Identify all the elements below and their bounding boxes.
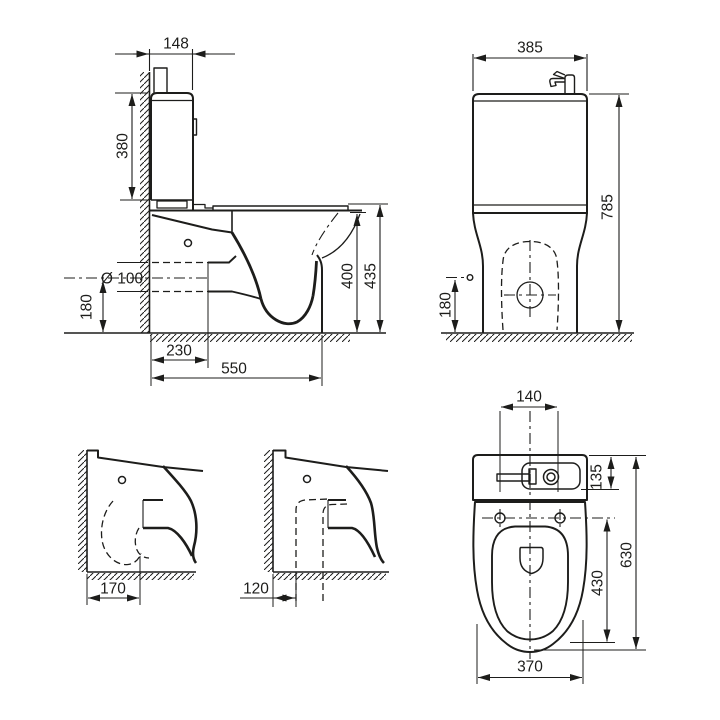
cistern-outline <box>151 93 193 210</box>
top-view: 140 135 630 430 370 <box>473 389 646 685</box>
bowl-top-profile <box>87 451 203 472</box>
bowl-side-right <box>577 213 587 333</box>
dim-label-cistern-depth: 148 <box>163 36 189 53</box>
side-fixing-hole <box>304 476 311 483</box>
tap-lever <box>497 474 530 481</box>
bowl-front-arc <box>322 214 360 258</box>
cistern-front-outline <box>473 94 587 213</box>
dim-label-total-depth: 550 <box>221 361 247 378</box>
dim-label-total-length: 630 <box>619 542 636 568</box>
bowl-side-left <box>473 213 483 333</box>
side-fixing-hole <box>119 477 126 484</box>
water-inlet-pipe <box>154 68 167 93</box>
wall-hatch <box>140 72 149 333</box>
front-view: 385 785 180 <box>438 40 635 343</box>
cistern-foot <box>157 201 187 208</box>
dim-label-bowl-inner-length: 430 <box>590 570 607 596</box>
tap-spout <box>550 79 565 87</box>
toilet-technical-drawing: 148 380 Ø 100 180 230 550 400 435 <box>0 0 720 720</box>
hidden-trap-outer <box>101 501 141 565</box>
pedestal-front <box>317 255 322 333</box>
trap-u-bend <box>261 296 313 324</box>
hidden-trap-inner <box>135 528 149 558</box>
dim-label-inlet-height: 180 <box>438 292 455 318</box>
trap-front-rise <box>313 261 317 296</box>
flush-outlet-shape <box>520 548 543 574</box>
wall-hatch <box>264 450 273 572</box>
dim-label-bowl-width: 370 <box>517 659 543 676</box>
trap-back-curve <box>232 233 261 300</box>
seat-swing-arc <box>312 213 338 255</box>
bowl-top-profile <box>273 451 388 472</box>
floor-hatch <box>150 334 350 342</box>
dim-label-width: 385 <box>517 40 543 57</box>
outlet-step-bottom <box>143 528 192 556</box>
dim-label-outlet-height: 180 <box>79 294 96 320</box>
bowl-section-curve <box>163 466 196 563</box>
dim-label-basin-depth: 135 <box>589 464 606 490</box>
dim-label-wall-to-outlet: 170 <box>100 581 126 598</box>
floor-hatch <box>446 334 632 342</box>
dim-label-wall-to-outlet: 120 <box>243 581 269 598</box>
bowl-inner-slope <box>152 215 232 233</box>
outlet-spigot-bottom <box>208 292 261 300</box>
bowl-section-curve <box>346 466 384 563</box>
seat-hinge-step <box>193 205 213 209</box>
dim-label-bowl-height: 400 <box>340 263 357 289</box>
tap-handle <box>554 72 566 79</box>
floor-hatch <box>273 573 386 580</box>
dim-label-tap-cutout-width: 140 <box>516 389 542 406</box>
wall-hatch <box>78 450 87 572</box>
tap-body <box>565 75 575 94</box>
water-inlet-point <box>467 275 473 281</box>
floor-outlet-variant-view: 170 <box>78 450 203 605</box>
outlet-step-bottom <box>328 528 375 557</box>
hidden-pipe-right <box>323 504 347 601</box>
side-section-view: 148 380 Ø 100 180 230 550 400 435 <box>64 36 388 387</box>
tap-hole-inner <box>547 473 555 481</box>
dim-label-outlet-diameter: Ø 100 <box>101 271 144 288</box>
dim-label-seat-height: 435 <box>363 263 380 289</box>
tap <box>550 72 575 95</box>
bottom-outlet-variant-view: 120 <box>240 450 389 607</box>
tap-hole-outer <box>544 470 559 485</box>
outlet-spigot-top <box>208 256 236 263</box>
side-fixing-hole <box>185 240 192 247</box>
dim-label-outlet-setback: 230 <box>166 343 192 360</box>
dim-label-cistern-height: 380 <box>115 133 132 159</box>
dim-label-total-height: 785 <box>600 194 617 220</box>
